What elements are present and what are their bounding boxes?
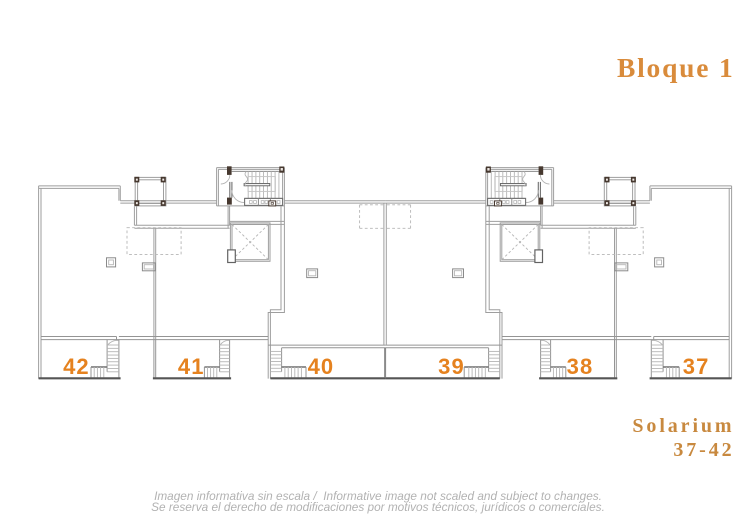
svg-text:39: 39 — [438, 354, 465, 379]
svg-text:42: 42 — [63, 354, 90, 379]
svg-text:41: 41 — [178, 354, 205, 379]
svg-text:37: 37 — [683, 354, 710, 379]
svg-text:38: 38 — [567, 354, 594, 379]
svg-text:40: 40 — [308, 354, 335, 379]
